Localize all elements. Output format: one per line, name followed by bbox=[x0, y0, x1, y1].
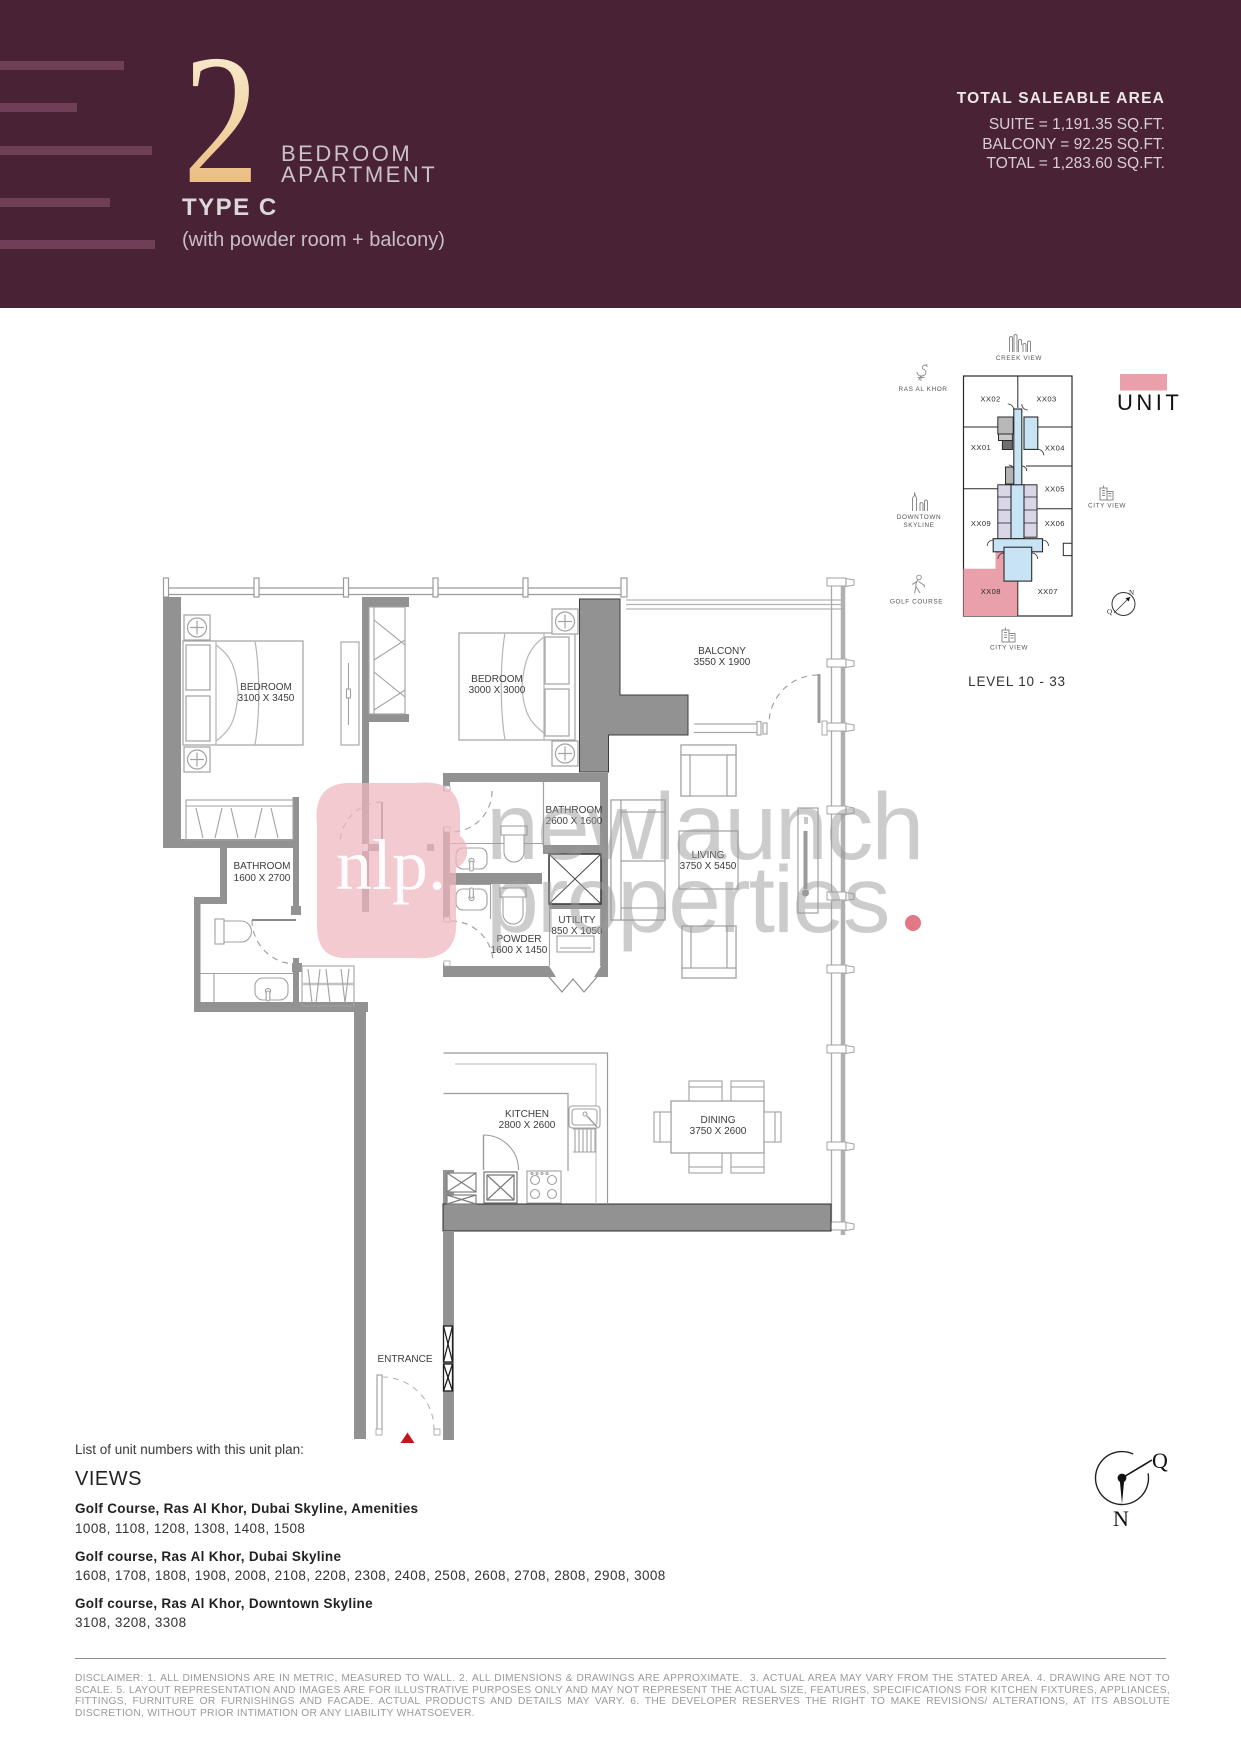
svg-text:DOWNTOWN: DOWNTOWN bbox=[897, 514, 941, 521]
svg-text:3550 X 1900: 3550 X 1900 bbox=[694, 657, 751, 668]
svg-text:XX02: XX02 bbox=[980, 395, 1000, 404]
svg-text:XX08: XX08 bbox=[981, 587, 1001, 596]
svg-text:BALCONY: BALCONY bbox=[698, 646, 746, 657]
svg-text:Q: Q bbox=[1107, 608, 1112, 616]
svg-text:BEDROOM: BEDROOM bbox=[240, 682, 292, 693]
svg-text:2800 X 2600: 2800 X 2600 bbox=[499, 1120, 556, 1131]
svg-text:XX06: XX06 bbox=[1045, 519, 1065, 528]
svg-text:3000 X 3000: 3000 X 3000 bbox=[469, 685, 526, 696]
svg-text:XX03: XX03 bbox=[1036, 395, 1056, 404]
svg-text:Q: Q bbox=[1152, 1448, 1168, 1473]
svg-text:CITY VIEW: CITY VIEW bbox=[1088, 503, 1126, 510]
svg-text:N: N bbox=[1129, 589, 1134, 597]
svg-text:XX07: XX07 bbox=[1038, 587, 1058, 596]
svg-text:XX05: XX05 bbox=[1045, 485, 1065, 494]
svg-text:nlp.: nlp. bbox=[336, 825, 446, 905]
svg-text:XX01: XX01 bbox=[971, 443, 991, 452]
svg-text:BATHROOM: BATHROOM bbox=[233, 861, 290, 872]
svg-text:1600 X 2700: 1600 X 2700 bbox=[234, 873, 291, 884]
svg-text:CREEK VIEW: CREEK VIEW bbox=[996, 355, 1042, 362]
svg-text:GOLF COURSE: GOLF COURSE bbox=[890, 599, 943, 606]
svg-text:properties: properties bbox=[486, 847, 888, 953]
svg-text:UNIT: UNIT bbox=[1117, 390, 1182, 415]
svg-text:CITY VIEW: CITY VIEW bbox=[990, 645, 1028, 652]
svg-text:N: N bbox=[1113, 1506, 1129, 1531]
svg-text:BEDROOM: BEDROOM bbox=[471, 674, 523, 685]
svg-text:XX09: XX09 bbox=[971, 519, 991, 528]
svg-text:ENTRANCE: ENTRANCE bbox=[377, 1354, 432, 1365]
svg-text:XX04: XX04 bbox=[1045, 444, 1065, 453]
svg-text:DINING: DINING bbox=[701, 1115, 736, 1126]
svg-text:SKYLINE: SKYLINE bbox=[903, 522, 934, 529]
svg-text:3100 X 3450: 3100 X 3450 bbox=[238, 693, 295, 704]
svg-text:3750 X 2600: 3750 X 2600 bbox=[690, 1126, 747, 1137]
svg-text:KITCHEN: KITCHEN bbox=[505, 1109, 549, 1120]
svg-text:LEVEL 10 - 33: LEVEL 10 - 33 bbox=[968, 674, 1066, 689]
svg-text:RAS AL KHOR: RAS AL KHOR bbox=[899, 386, 948, 393]
